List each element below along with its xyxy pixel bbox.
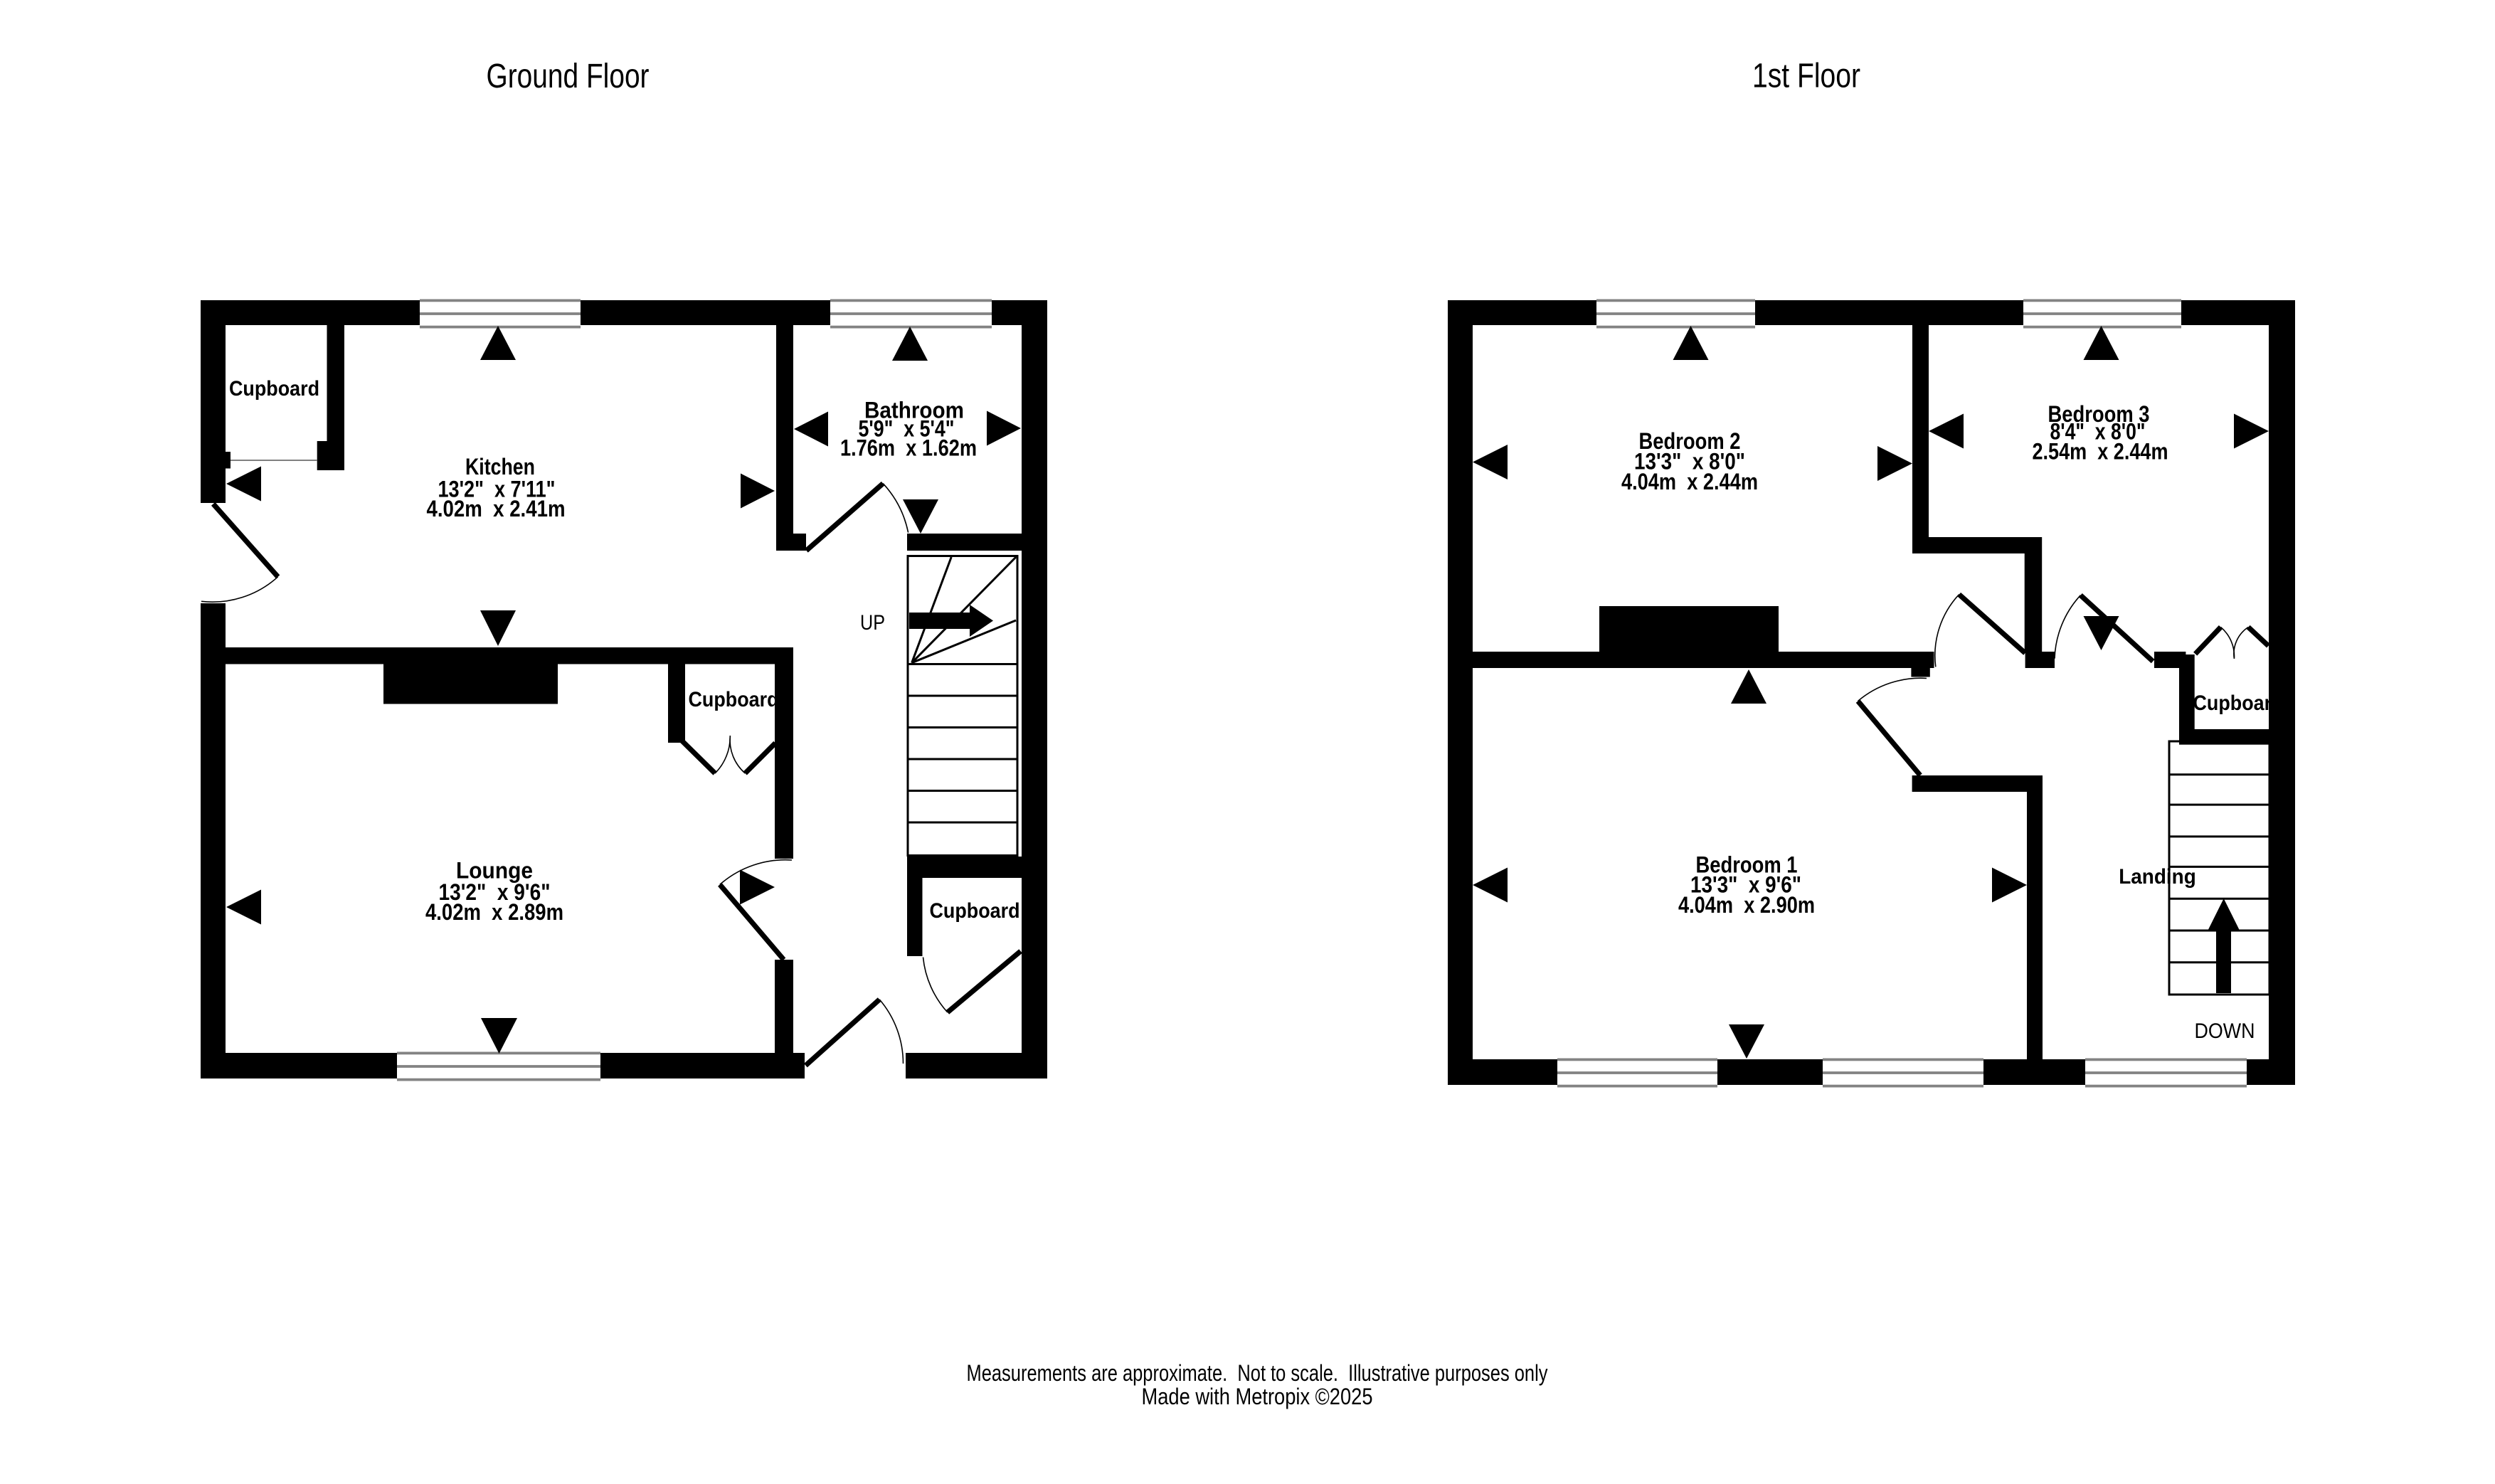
svg-text:Made with Metropix ©2025: Made with Metropix ©2025 bbox=[1142, 1384, 1373, 1409]
svg-text:4.02m x 2.41m: 4.02m x 2.41m bbox=[427, 496, 566, 521]
svg-text:4.04m x 2.90m: 4.04m x 2.90m bbox=[1678, 892, 1815, 918]
svg-text:DOWN: DOWN bbox=[2195, 1019, 2255, 1043]
svg-text:Measurements are approximate.: Measurements are approximate. Not to sca… bbox=[967, 1360, 1548, 1386]
svg-text:4.02m x 2.89m: 4.02m x 2.89m bbox=[425, 899, 563, 925]
svg-text:Ground Floor: Ground Floor bbox=[487, 58, 650, 95]
svg-text:Cupboard: Cupboard bbox=[689, 688, 779, 711]
svg-text:1st Floor: 1st Floor bbox=[1752, 58, 1860, 95]
svg-text:Cupboard: Cupboard bbox=[930, 899, 1020, 923]
svg-text:Landing: Landing bbox=[2119, 865, 2196, 889]
svg-text:Cupboard: Cupboard bbox=[229, 377, 319, 401]
svg-text:4.04m x 2.44m: 4.04m x 2.44m bbox=[1621, 469, 1758, 494]
svg-text:1.76m x 1.62m: 1.76m x 1.62m bbox=[840, 435, 977, 461]
svg-text:2.54m x 2.44m: 2.54m x 2.44m bbox=[2033, 439, 2168, 465]
svg-text:UP: UP bbox=[860, 611, 885, 635]
svg-text:Cupboard: Cupboard bbox=[2193, 691, 2284, 715]
